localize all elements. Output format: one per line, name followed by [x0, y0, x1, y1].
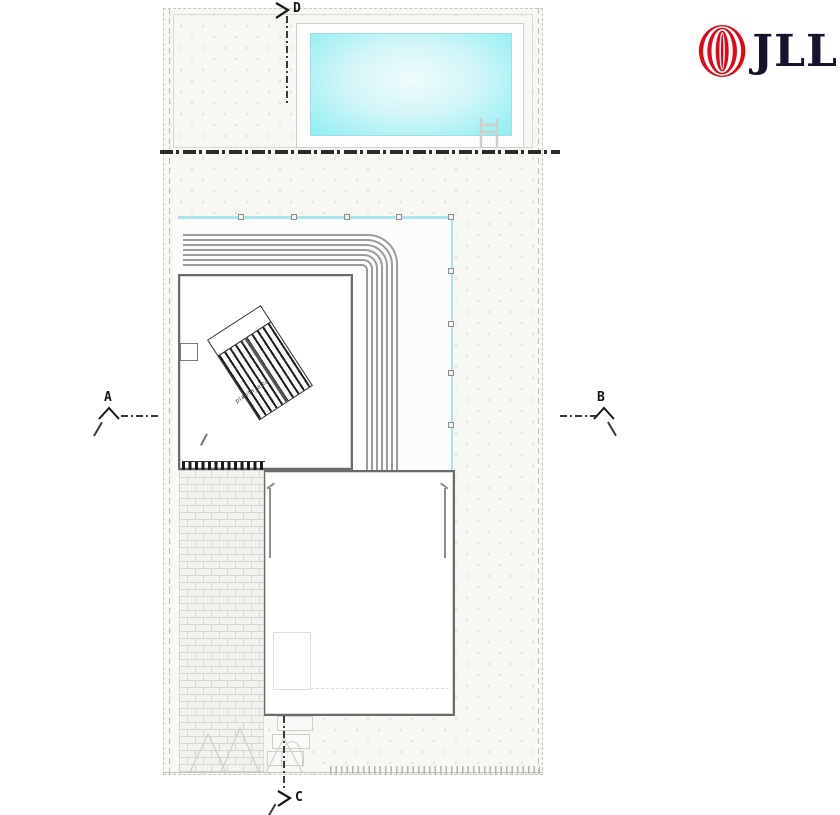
parcel-inner-right-boundary	[538, 8, 539, 775]
door-leaf	[269, 488, 271, 558]
section-arrow-c-icon	[276, 789, 294, 807]
railing-post	[448, 422, 454, 428]
railing-post	[448, 321, 454, 327]
railing-right	[451, 216, 454, 471]
section-tail-b	[607, 422, 616, 437]
railing-post	[448, 214, 454, 220]
railing-post	[448, 370, 454, 376]
section-marker-d: D	[293, 2, 301, 16]
interior-hidden-line	[311, 688, 449, 689]
door-leaf	[444, 488, 446, 558]
section-tail-c	[268, 804, 276, 815]
section-arrow-b-icon	[592, 405, 616, 421]
jll-logo-text: JLL	[752, 26, 838, 77]
railing-post	[448, 268, 454, 274]
section-line-c	[283, 716, 285, 788]
section-tail-a	[93, 422, 102, 437]
section-line-a	[121, 415, 159, 417]
section-arrow-d-icon	[274, 1, 292, 19]
section-line-d	[286, 16, 288, 104]
interior-fixture-outline	[273, 632, 311, 690]
parcel-inner-left-boundary	[169, 8, 170, 775]
floor-plan-page: planta_alta D A	[0, 0, 840, 815]
section-marker-c: C	[295, 791, 303, 805]
section-arrow-a-icon	[97, 405, 121, 421]
wall-niche	[180, 343, 198, 361]
railing-post	[238, 214, 244, 220]
section-marker-b: B	[597, 391, 605, 405]
bottom-fence-ticks	[330, 766, 540, 774]
railing-post	[396, 214, 402, 220]
jll-logo: JLL	[698, 20, 838, 82]
section-line-b	[560, 415, 596, 417]
railing-top	[178, 216, 453, 219]
pool-ladder-icon	[476, 116, 502, 149]
property-section-line	[160, 150, 560, 154]
section-marker-a: A	[104, 391, 112, 405]
railing-post	[344, 214, 350, 220]
jll-globe-icon	[698, 22, 746, 80]
railing-post	[291, 214, 297, 220]
